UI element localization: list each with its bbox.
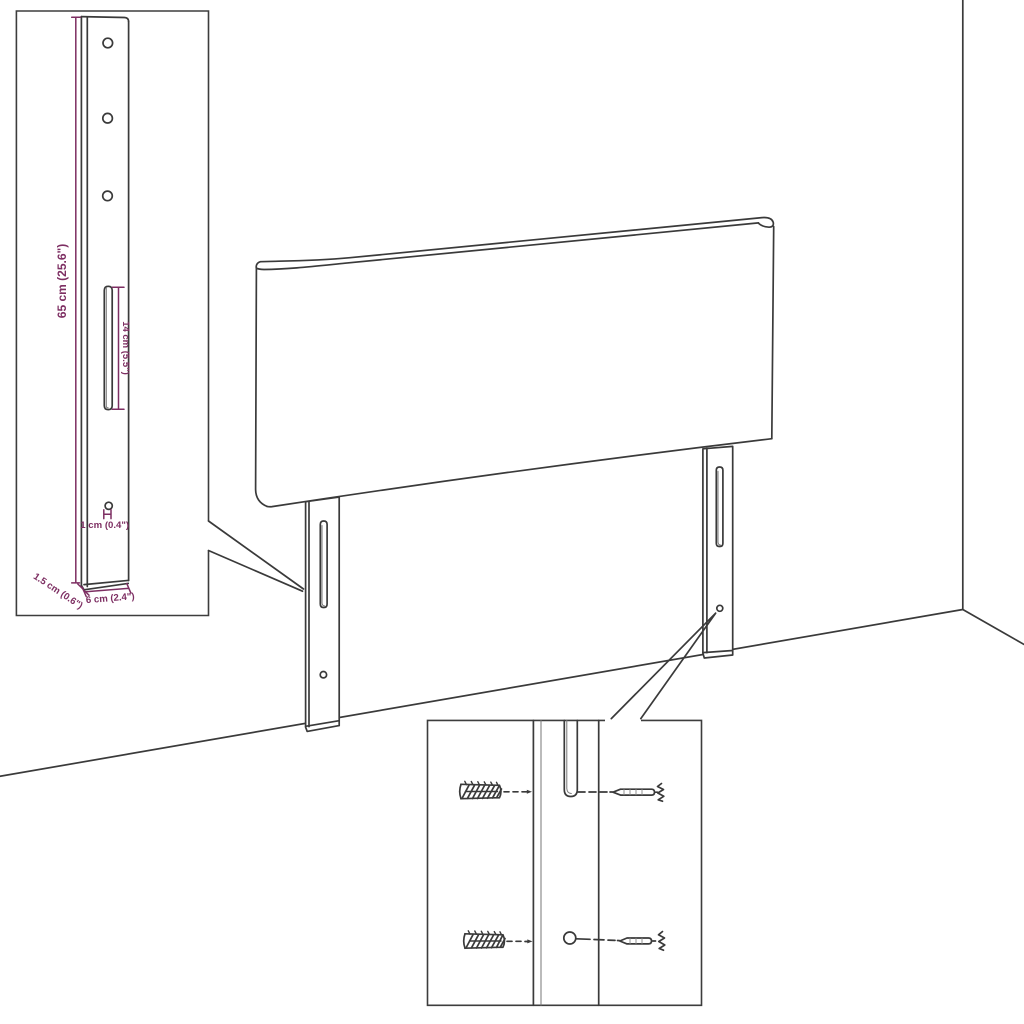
svg-text:65 cm (25.6"): 65 cm (25.6") [55,244,69,318]
svg-text:1 cm (0.4"): 1 cm (0.4") [80,520,129,531]
svg-text:14 cm (5.5"): 14 cm (5.5") [120,321,131,375]
